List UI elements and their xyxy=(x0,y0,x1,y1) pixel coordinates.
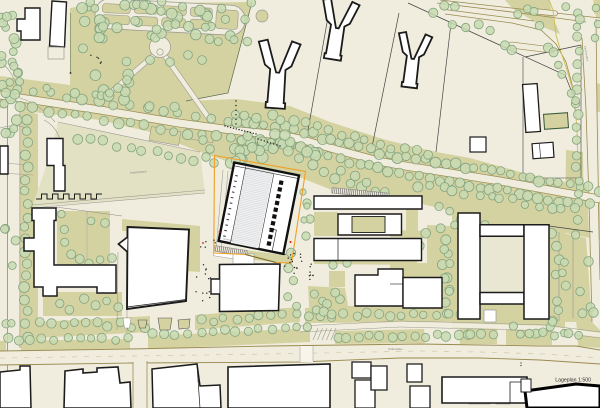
svg-text:Stübelallee: Stübelallee xyxy=(388,347,403,351)
svg-text:Lageplan 1:500: Lageplan 1:500 xyxy=(555,378,591,384)
